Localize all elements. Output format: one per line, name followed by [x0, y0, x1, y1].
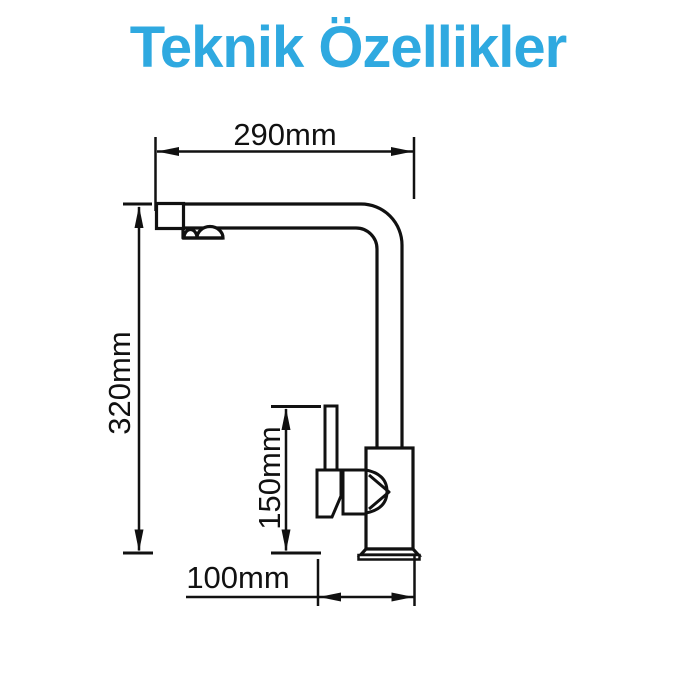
spout-inner-path [183, 228, 377, 448]
dimension-base-offset: 100mm [186, 556, 415, 606]
arrowhead-right [391, 147, 413, 156]
dimension-label-handle-height: 150mm [252, 426, 287, 529]
dimension-handle-height: 150mm [252, 407, 321, 554]
faucet [157, 204, 420, 560]
spout-outer-path [157, 204, 402, 448]
arrowhead-down [282, 530, 291, 552]
faucet-body [366, 448, 413, 549]
arrowhead-left [157, 147, 179, 156]
aerator [184, 227, 223, 239]
arrowhead-right [392, 593, 414, 602]
arrowhead-down [135, 530, 144, 552]
arrowhead-up [135, 206, 144, 228]
faucet-technical-drawing: 290mm 320mm 150mm 100m [0, 0, 696, 675]
dimension-total-height: 320mm [102, 204, 153, 553]
dimension-spout-reach: 290mm [156, 117, 415, 211]
spec-sheet: Teknik Özellikler [0, 0, 696, 675]
arrowhead-left [319, 593, 341, 602]
handle-grip-right [343, 470, 366, 514]
dimension-label-base-offset: 100mm [186, 560, 289, 595]
spout-tip [157, 204, 184, 229]
dimension-label-total-height: 320mm [102, 331, 137, 434]
handle-grip-left [317, 470, 341, 517]
base-plate [359, 555, 420, 560]
handle-lever [325, 406, 337, 470]
dimension-label-spout-reach: 290mm [233, 117, 336, 152]
